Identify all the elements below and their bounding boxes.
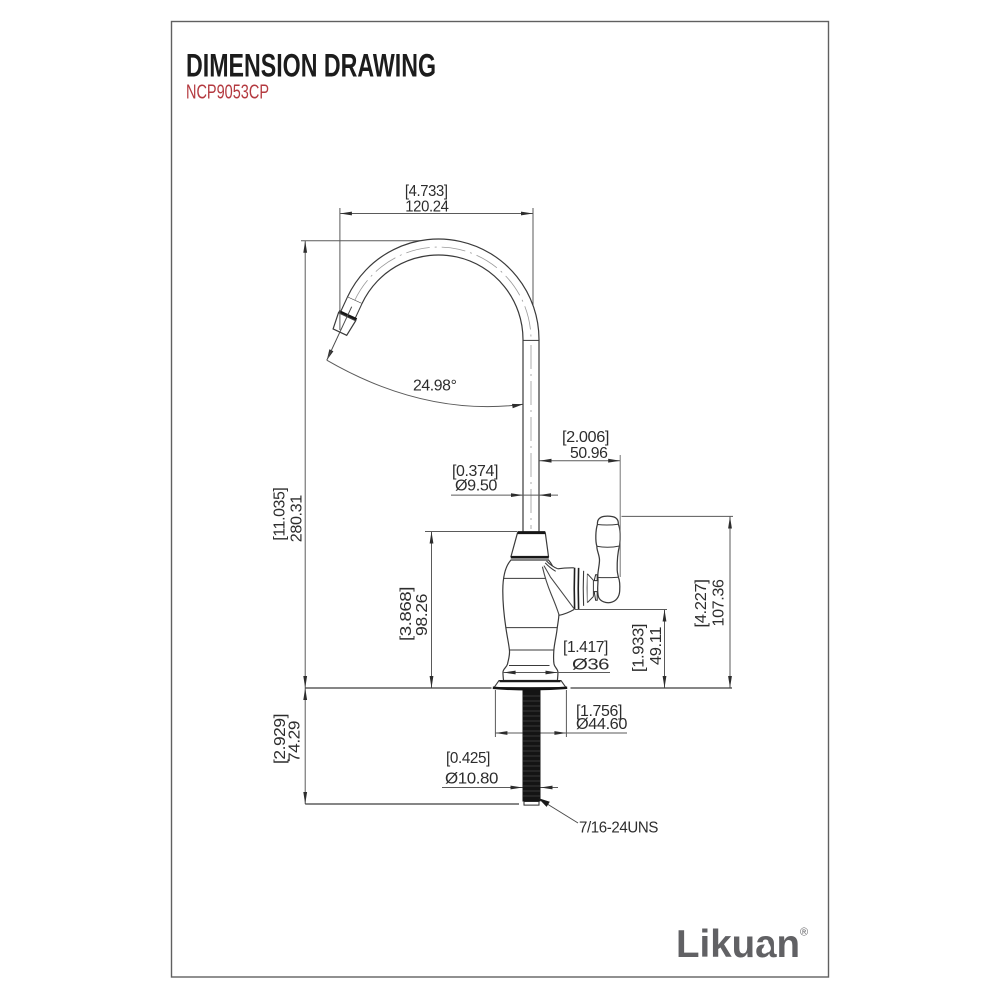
svg-text:280.31: 280.31 xyxy=(289,495,306,542)
svg-text:Likuan: Likuan xyxy=(676,923,800,966)
svg-text:Ø36: Ø36 xyxy=(572,657,610,674)
svg-text:[3.868]: [3.868] xyxy=(398,587,415,641)
svg-text:NCP9053CP: NCP9053CP xyxy=(186,82,269,104)
svg-text:120.24: 120.24 xyxy=(405,199,449,216)
svg-text:98.26: 98.26 xyxy=(414,593,431,636)
svg-text:74.29: 74.29 xyxy=(287,720,304,762)
svg-text:Ø10.80: Ø10.80 xyxy=(445,771,499,788)
svg-text:107.36: 107.36 xyxy=(711,579,728,626)
svg-text:[0.425]: [0.425] xyxy=(446,750,490,767)
svg-text:[4.733]: [4.733] xyxy=(405,183,448,200)
svg-text:®: ® xyxy=(800,927,808,939)
svg-text:49.11: 49.11 xyxy=(648,626,665,665)
svg-text:[4.227]: [4.227] xyxy=(693,580,710,628)
svg-text:[11.035]: [11.035] xyxy=(272,488,289,541)
svg-text:[1.933]: [1.933] xyxy=(631,624,648,672)
svg-text:24.98°: 24.98° xyxy=(413,378,457,395)
svg-text:[1.417]: [1.417] xyxy=(563,639,608,656)
svg-text:50.96: 50.96 xyxy=(570,445,608,462)
svg-text:[2.006]: [2.006] xyxy=(562,429,609,446)
svg-text:7/16-24UNS: 7/16-24UNS xyxy=(579,820,658,837)
svg-text:Ø9.50: Ø9.50 xyxy=(455,478,497,495)
svg-text:Ø44.60: Ø44.60 xyxy=(576,716,628,733)
svg-text:DIMENSION DRAWING: DIMENSION DRAWING xyxy=(186,48,436,84)
